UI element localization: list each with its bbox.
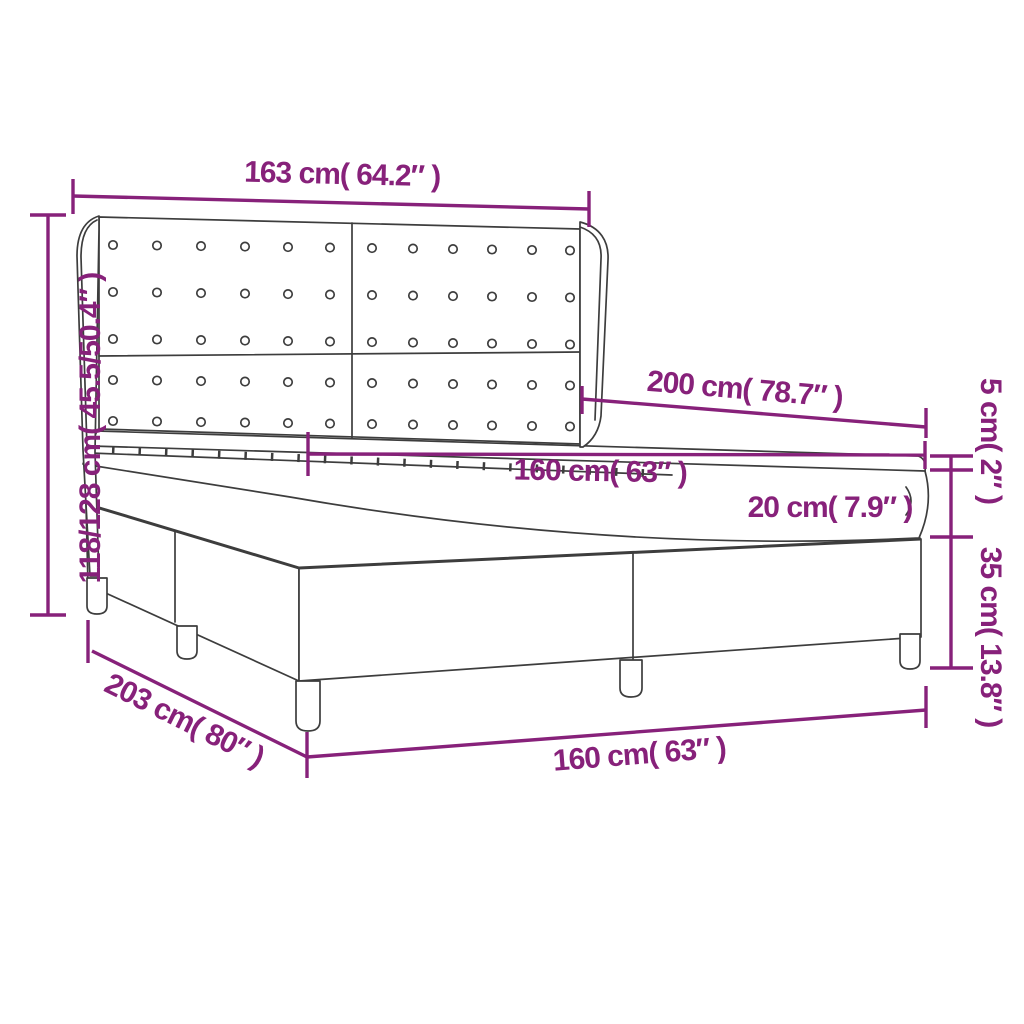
tuft-button <box>566 381 574 389</box>
tuft-button <box>284 419 292 427</box>
tuft-button <box>449 292 457 300</box>
mattress-thickness-label: 20 cm( 7.9″ ) <box>748 491 913 524</box>
bed-width-bottom-label: 160 cm( 63″ ) <box>552 731 727 777</box>
tuft-button <box>241 418 249 426</box>
tuft-button <box>326 243 334 251</box>
dim-right-heights: 5 cm( 2″ ) 35 cm( 13.8″ ) <box>930 378 1007 727</box>
tuft-button <box>326 337 334 345</box>
topper-thickness-label: 5 cm( 2″ ) <box>974 378 1007 504</box>
tuft-button <box>368 420 376 428</box>
tuft-button <box>109 376 117 384</box>
dim-line <box>73 196 589 209</box>
dim-mattress-length: 200 cm( 78.7″ ) <box>582 365 926 438</box>
right-wing <box>580 222 608 447</box>
tuft-button <box>368 338 376 346</box>
tuft-button <box>153 417 161 425</box>
tuft-button <box>326 419 334 427</box>
headboard-front-face <box>99 217 580 444</box>
tuft-button <box>197 418 205 426</box>
base-height-label: 35 cm( 13.8″ ) <box>974 547 1007 727</box>
base-foot-face <box>299 539 921 681</box>
dim-headboard-width: 163 cm( 64.2″ ) <box>73 156 589 227</box>
tuft-button <box>284 243 292 251</box>
tuft-button <box>197 289 205 297</box>
tuft-button <box>488 292 496 300</box>
tuft-button <box>284 290 292 298</box>
tuft-button <box>197 377 205 385</box>
leg-foot-right <box>900 634 920 669</box>
headboard <box>99 217 580 444</box>
headboard-height-label: 118/128 cm( 45.5/50.4″ ) <box>74 273 107 584</box>
tuft-button <box>241 242 249 250</box>
mattress-outline <box>83 431 928 541</box>
tuft-button <box>109 417 117 425</box>
leg-front-corner <box>296 681 320 731</box>
tuft-button <box>197 242 205 250</box>
tuft-button <box>197 336 205 344</box>
tuft-button <box>566 422 574 430</box>
tuft-button <box>449 339 457 347</box>
tuft-button <box>153 335 161 343</box>
tuft-button <box>153 376 161 384</box>
tuft-button <box>488 339 496 347</box>
headboard-width-label: 163 cm( 64.2″ ) <box>244 156 441 194</box>
tuft-button <box>528 293 536 301</box>
tuft-button <box>326 290 334 298</box>
dim-bed-width-bottom: 160 cm( 63″ ) <box>307 686 926 778</box>
tuft-button <box>409 244 417 252</box>
tuft-button <box>153 241 161 249</box>
bed-length-label: 203 cm( 80″ ) <box>99 667 269 774</box>
tuft-button <box>566 340 574 348</box>
leg-left-middle <box>177 626 197 659</box>
tuft-button <box>241 336 249 344</box>
tuft-button <box>368 244 376 252</box>
tuft-button <box>153 288 161 296</box>
tuft-button <box>326 378 334 386</box>
mattress-width-top-label: 160 cm( 63″ ) <box>513 453 687 489</box>
tuft-button <box>488 380 496 388</box>
tuft-button <box>241 289 249 297</box>
tuft-button <box>528 340 536 348</box>
tuft-button <box>241 377 249 385</box>
tuft-button <box>566 293 574 301</box>
tuft-button <box>449 421 457 429</box>
tuft-button <box>109 335 117 343</box>
tuft-button <box>449 380 457 388</box>
tuft-button <box>528 381 536 389</box>
tuft-button <box>284 337 292 345</box>
dim-headboard-height: 118/128 cm( 45.5/50.4″ ) <box>30 215 107 615</box>
tuft-button <box>528 246 536 254</box>
tuft-button <box>409 291 417 299</box>
tuft-button <box>409 338 417 346</box>
mattress <box>83 431 928 541</box>
bed-dimension-diagram: 163 cm( 64.2″ ) 118/128 cm( 45.5/50.4″ )… <box>0 0 1024 1024</box>
diagram-canvas: 163 cm( 64.2″ ) 118/128 cm( 45.5/50.4″ )… <box>0 0 1024 1024</box>
tuft-button <box>528 422 536 430</box>
tuft-button <box>368 291 376 299</box>
tuft-button <box>488 245 496 253</box>
tuft-button <box>109 241 117 249</box>
tuft-button <box>409 379 417 387</box>
tuft-button <box>409 420 417 428</box>
tuft-button <box>449 245 457 253</box>
tuft-button <box>284 378 292 386</box>
tuft-button <box>109 288 117 296</box>
leg-foot-middle <box>620 660 642 697</box>
tuft-button <box>368 379 376 387</box>
tuft-button <box>566 246 574 254</box>
tuft-button <box>488 421 496 429</box>
